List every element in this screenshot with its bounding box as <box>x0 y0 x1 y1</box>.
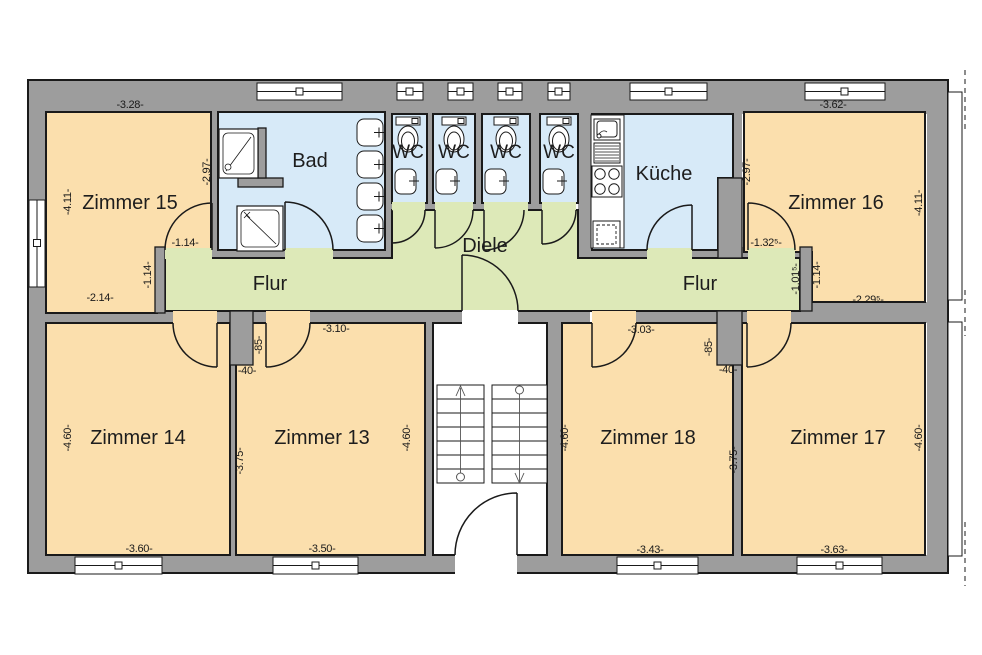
dimension-label: -1.01⁵- <box>790 263 802 295</box>
dimension-label: -1.14- <box>172 237 200 249</box>
dimension-label: -1.32⁵- <box>750 237 782 249</box>
dimension-label: -1.14- <box>811 261 823 289</box>
stove <box>592 166 622 197</box>
dimension-label: -4.60- <box>401 424 413 452</box>
window <box>397 83 423 100</box>
wall-pillar <box>718 178 742 258</box>
window <box>257 83 342 100</box>
room-label-zimmer-18: Zimmer 18 <box>600 427 696 449</box>
sink <box>543 169 567 194</box>
adjacent-building <box>948 70 965 586</box>
shower-tray <box>219 129 258 178</box>
window <box>75 557 162 574</box>
room-label-bad: Bad <box>292 150 328 172</box>
dimension-label: -3.10- <box>323 323 351 335</box>
room-label-zimmer-16: Zimmer 16 <box>788 192 884 214</box>
room-label-wc-3: WC <box>490 142 522 163</box>
dimension-label: -3.28- <box>117 99 145 111</box>
room-label-zimmer-15: Zimmer 15 <box>82 192 178 214</box>
dimension-label: -4.11- <box>913 189 925 216</box>
room-label-kueche: Küche <box>636 163 693 185</box>
kitchen-unit <box>591 115 624 248</box>
dimension-label: -3.62- <box>820 99 848 111</box>
dimension-label: -3.75- <box>234 447 246 475</box>
dimension-label: -3.60- <box>126 543 154 555</box>
dimension-label: -3.03- <box>628 324 656 336</box>
stair-flight-down <box>492 385 547 483</box>
dimension-label: -85- <box>703 337 715 356</box>
dimension-label: -3.75- <box>728 446 740 474</box>
kitchen-cabinet <box>593 221 620 248</box>
room-label-flur-ost: Flur <box>683 273 718 295</box>
kitchen-drainer <box>594 143 620 163</box>
dimension-label: -4.60- <box>913 424 925 452</box>
window <box>498 83 522 100</box>
dimension-label: -40- <box>238 365 257 377</box>
dimension-label: -1.14- <box>142 261 154 289</box>
room-label-wc-1: WC <box>392 142 424 163</box>
wall-pillar <box>230 311 253 365</box>
room-label-diele: Diele <box>462 235 508 257</box>
dimension-label: -4.60- <box>62 424 74 452</box>
sink <box>485 169 509 194</box>
stair-flight-up <box>437 385 484 483</box>
room-label-zimmer-14: Zimmer 14 <box>90 427 186 449</box>
window <box>273 557 358 574</box>
window <box>630 83 707 100</box>
sink <box>395 169 419 194</box>
staircase <box>437 385 547 483</box>
room-label-wc-4: WC <box>543 142 575 163</box>
dimension-label: -2.14- <box>87 292 115 304</box>
shower-tray <box>237 206 283 251</box>
room-label-zimmer-17: Zimmer 17 <box>790 427 886 449</box>
floor-plan: Zimmer 15BadWCWCWCWCKücheZimmer 16FlurDi… <box>0 0 982 655</box>
room-label-zimmer-13: Zimmer 13 <box>274 427 370 449</box>
window <box>797 557 882 574</box>
kitchen-sink <box>594 119 620 140</box>
dimension-label: -2.29⁵- <box>852 294 884 306</box>
wall-stub <box>155 247 165 313</box>
sink <box>436 169 460 194</box>
dimension-label: -3.50- <box>309 543 337 555</box>
dimension-label: -3.63- <box>821 544 849 556</box>
room-label-flur-west: Flur <box>253 273 288 295</box>
floor-plan-svg: Zimmer 15BadWCWCWCWCKücheZimmer 16FlurDi… <box>0 0 982 655</box>
dimension-label: -2.97- <box>201 158 213 186</box>
wall-pillar <box>717 311 742 365</box>
wall-stub <box>258 128 266 178</box>
window <box>448 83 473 100</box>
dimension-label: -85- <box>253 335 265 354</box>
room-label-wc-2: WC <box>438 142 470 163</box>
dimension-label: -40- <box>719 364 738 376</box>
wall-stub <box>238 178 283 187</box>
window <box>548 83 570 100</box>
dimension-label: -2.97- <box>741 158 753 186</box>
dimension-label: -3.43- <box>637 544 665 556</box>
dimension-label: -4.11- <box>62 188 74 215</box>
window <box>617 557 698 574</box>
window <box>805 83 885 100</box>
window <box>29 200 45 287</box>
dimension-label: -4.60- <box>559 424 571 452</box>
